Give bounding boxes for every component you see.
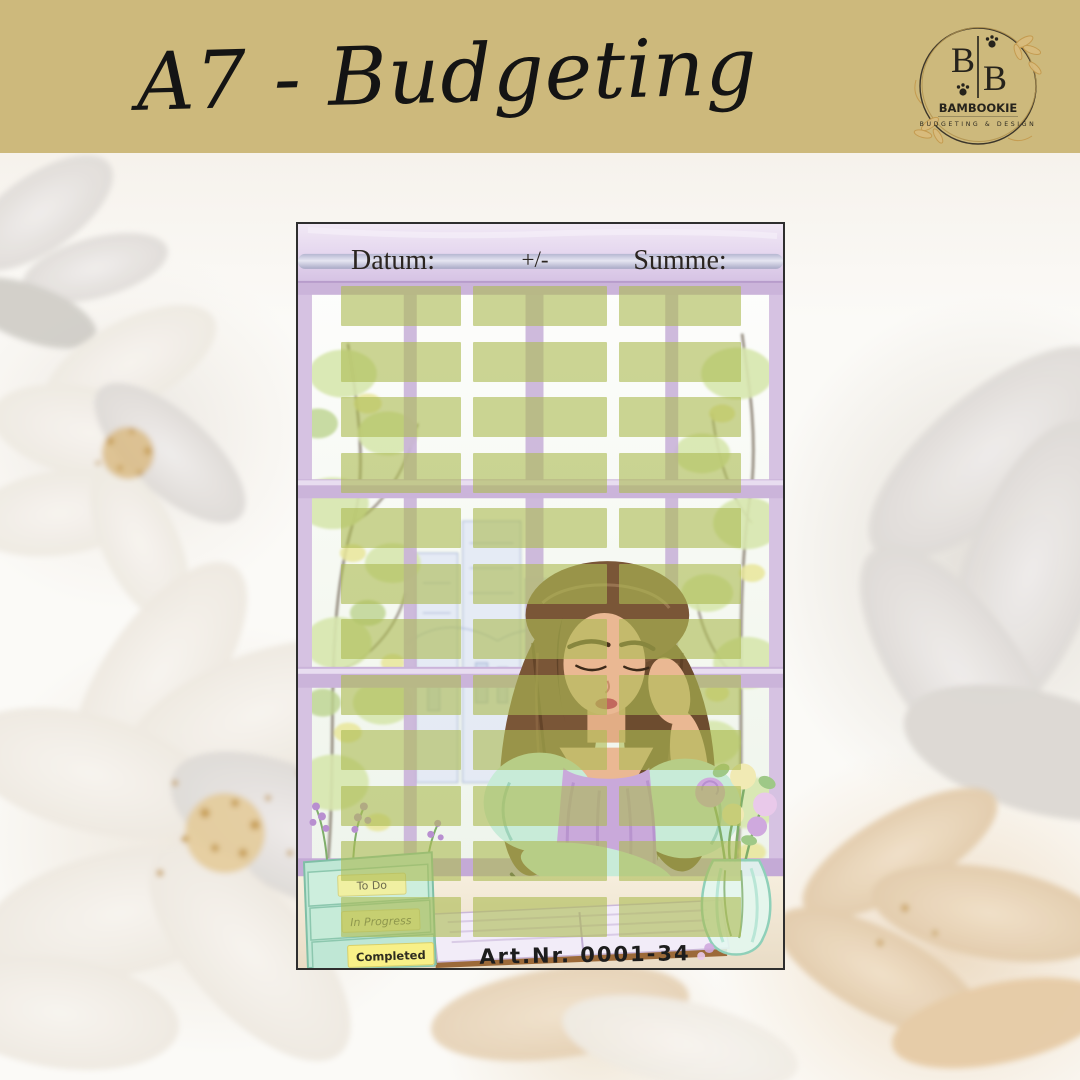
- page-title: A7 - Budgeting: [135, 20, 758, 129]
- logo-monogram-right: B: [983, 58, 1007, 98]
- sticker-slot: [619, 564, 741, 604]
- sticker-slot: [341, 730, 461, 770]
- sticker-slot: [473, 508, 607, 548]
- sticker-slot: [341, 342, 461, 382]
- logo-brand-name: BAMBOOKIE: [939, 101, 1018, 115]
- sticker-slot: [473, 453, 607, 493]
- sticker-slot: [341, 619, 461, 659]
- sticker-slot: [473, 730, 607, 770]
- sticker-slot: [473, 619, 607, 659]
- sticker-slot: [473, 786, 607, 826]
- sticker-slot: [473, 841, 607, 881]
- brand-logo: B B BAMBOOKIE BUDGETING & DESIGN: [908, 20, 1048, 150]
- sticker-slot: [619, 397, 741, 437]
- sticker-slot: [341, 841, 461, 881]
- sum-column-label: Summe:: [633, 245, 726, 277]
- sticker-slot: [473, 397, 607, 437]
- sticker-slot: [619, 508, 741, 548]
- sticker-slot: [341, 508, 461, 548]
- sticker-slot: [341, 786, 461, 826]
- logo-monogram-left: B: [951, 40, 975, 80]
- sticker-slot: [341, 675, 461, 715]
- sticker-slot: [619, 675, 741, 715]
- sticker-slot: [619, 730, 741, 770]
- sticker-sheet-card: To Do In Progress Completed: [296, 222, 785, 970]
- title-band: A7 - Budgeting B B: [0, 0, 1080, 153]
- logo-tagline: BUDGETING & DESIGN: [920, 121, 1037, 128]
- sticker-slot: [619, 619, 741, 659]
- sticker-slot: [619, 841, 741, 881]
- sticker-slot: [619, 286, 741, 326]
- article-number: Art.Nr. 0001-34: [479, 941, 691, 969]
- sticker-slot: [473, 675, 607, 715]
- product-image: A7 - Budgeting B B: [0, 0, 1080, 1080]
- plus-minus-column-label: +/-: [521, 247, 548, 273]
- sticker-slot: [473, 342, 607, 382]
- sticker-slot: [619, 786, 741, 826]
- date-column-label: Datum:: [351, 245, 435, 277]
- sticker-slot: [473, 286, 607, 326]
- sticker-slot: [341, 286, 461, 326]
- sticker-slot: [619, 342, 741, 382]
- sticker-slot: [341, 564, 461, 604]
- sticker-slot: [341, 397, 461, 437]
- sticker-slot: [473, 564, 607, 604]
- sticker-slot: [341, 897, 461, 937]
- flower-right: [823, 311, 1080, 848]
- tab-completed-label: Completed: [356, 948, 426, 964]
- sticker-slot: [619, 897, 741, 937]
- sticker-grid: [341, 286, 741, 937]
- sticker-slot: [341, 453, 461, 493]
- sticker-slot: [619, 453, 741, 493]
- sticker-slot: [473, 897, 607, 937]
